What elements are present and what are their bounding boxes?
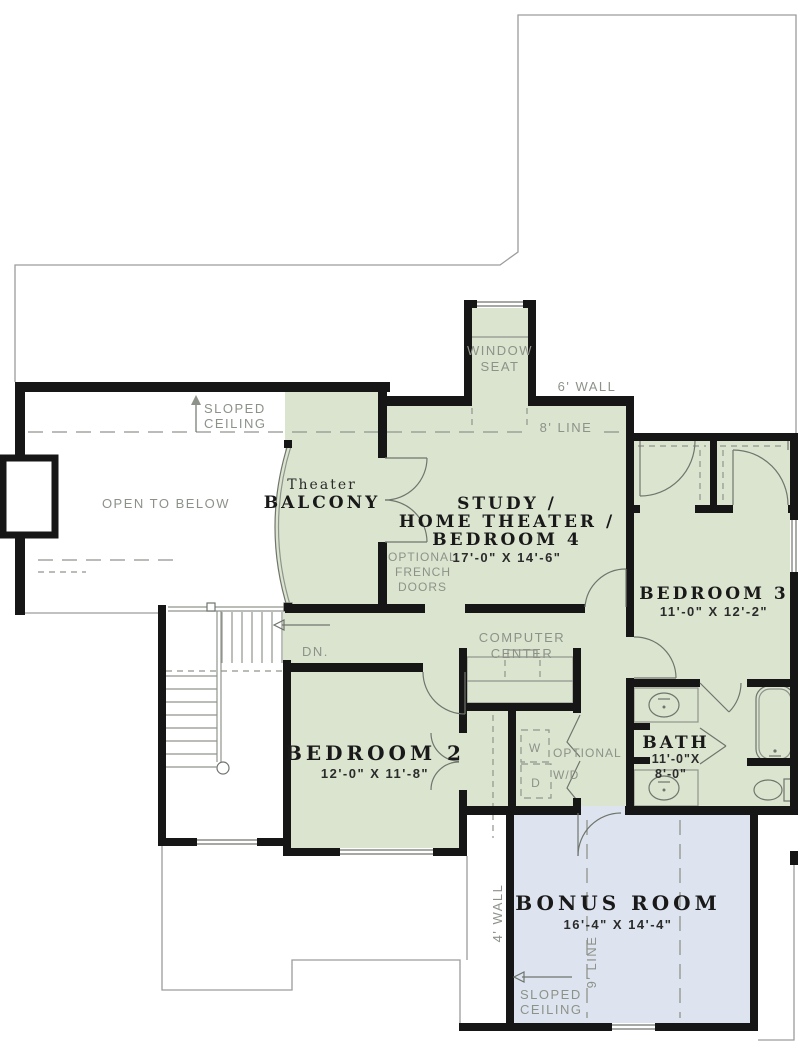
window-seat-label: SEAT: [481, 359, 520, 374]
open-to-below-label: OPEN TO BELOW: [102, 496, 230, 511]
optional-french-label: DOORS: [398, 580, 447, 594]
stair-bay-window: [197, 838, 257, 846]
bonus-room-dims: 16'-4" X 14'-4": [564, 917, 673, 932]
study-label: HOME THEATER /: [399, 512, 615, 532]
washer-label: W: [529, 741, 541, 755]
dn-label: DN.: [302, 644, 329, 659]
bath-dims: 8'-0": [655, 767, 687, 781]
floor-plan-svg: WINDOW SEAT 6' WALL 8' LINE SLOPED CEILI…: [0, 0, 800, 1055]
bedroom2-window: [340, 848, 433, 856]
bedroom3-window: [790, 520, 798, 572]
bath-dims: 11'-0"X: [652, 752, 701, 766]
bedroom2-dims: 12'-0" X 11'-8": [321, 766, 429, 781]
staircase: [166, 603, 292, 774]
balcony-pre-label: Theater: [287, 477, 357, 493]
bedroom3-label: BEDROOM 3: [639, 584, 788, 604]
floor-plan: WINDOW SEAT 6' WALL 8' LINE SLOPED CEILI…: [0, 0, 800, 1055]
bath-label: BATH: [642, 733, 709, 753]
balcony-label: BALCONY: [264, 493, 381, 513]
chimney-box: [3, 458, 55, 535]
optional-wd-label: OPTIONAL: [553, 746, 622, 760]
study-dims: 17'-0" X 14'-6": [453, 550, 562, 565]
dryer-label: D: [531, 776, 541, 790]
sloped-ceiling-top-label: CEILING: [204, 416, 267, 431]
upper-treads: [222, 612, 282, 663]
nine-line-label: 9' LINE: [584, 936, 599, 989]
bedroom3-dims: 11'-0" X 12'-2": [660, 604, 768, 619]
optional-french-label: FRENCH: [395, 565, 451, 579]
optional-french-label: OPTIONAL: [388, 550, 457, 564]
lower-treads: [166, 676, 217, 767]
four-wall-label: 4' WALL: [490, 884, 505, 943]
window-seat-window: [477, 300, 523, 308]
rail-post: [207, 603, 215, 611]
window-seat-label: WINDOW: [467, 343, 533, 358]
sloped-ceiling-top-arrow: [191, 395, 201, 432]
optional-wd-label: W/D: [553, 768, 579, 782]
rail-newel-curl: [217, 762, 229, 774]
sloped-ceiling-top-label: SLOPED: [204, 401, 266, 416]
sloped-ceiling-bottom-label: SLOPED: [520, 987, 582, 1002]
study-label: BEDROOM 4: [432, 530, 581, 550]
six-wall-label: 6' WALL: [558, 379, 617, 394]
bonus-room-label: BONUS ROOM: [515, 891, 720, 915]
eight-line-label: 8' LINE: [540, 420, 593, 435]
computer-center-label: CENTER: [491, 646, 553, 661]
study-label: STUDY /: [457, 494, 557, 514]
sloped-ceiling-bottom-label: CEILING: [520, 1002, 583, 1017]
bedroom2-label: BEDROOM 2: [285, 741, 465, 765]
bonus-window: [612, 1023, 655, 1031]
computer-center-label: COMPUTER: [479, 630, 565, 645]
